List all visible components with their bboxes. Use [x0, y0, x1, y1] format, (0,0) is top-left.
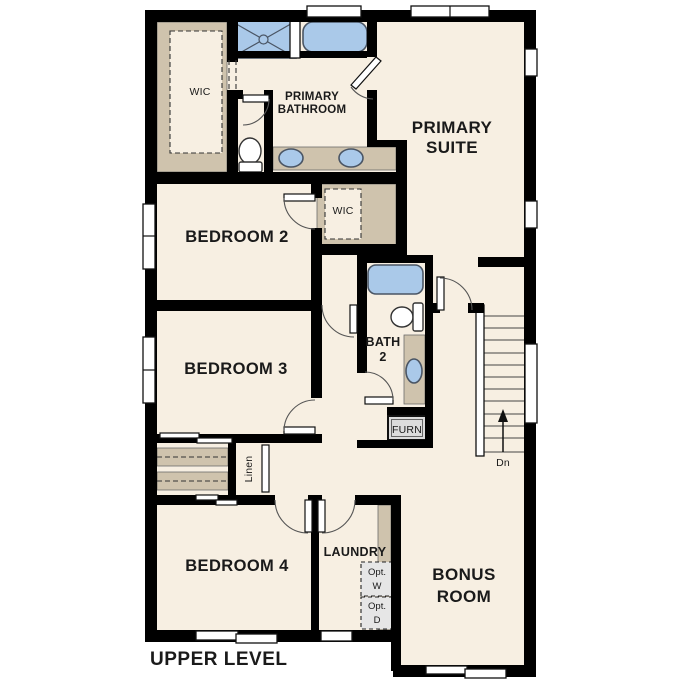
bedroom2-wic-label: WIC [332, 205, 353, 217]
linen-label: Linen [243, 456, 255, 483]
door-leaf [284, 194, 315, 201]
bedroom2-label: BEDROOM 2 [185, 228, 289, 246]
stair-railing [476, 305, 484, 456]
stairs-down-label: Dn [496, 457, 510, 469]
optional-dryer-label: D [374, 615, 381, 626]
window [525, 201, 537, 228]
bedroom2-bedroom3-wall [145, 300, 322, 311]
stair-north-wall [478, 257, 536, 267]
window [321, 631, 352, 641]
optional-washer-label: W [373, 581, 382, 592]
bathtub-bath2-icon [368, 265, 423, 294]
door-leaf [318, 500, 325, 532]
sliding-closet-door [160, 433, 199, 438]
bath2-label: BATH [366, 335, 401, 349]
window [525, 49, 537, 76]
window [525, 344, 537, 423]
bonus-wall-left [391, 495, 401, 671]
toilet-room-north-stub [227, 90, 243, 99]
bath2-east-wall [425, 255, 433, 448]
sliding-closet-door [216, 500, 237, 505]
door-leaf [305, 500, 312, 532]
laundry-north-wall [355, 495, 401, 505]
primary-suite-label: PRIMARY [412, 118, 493, 137]
furnace-label: FURN [392, 424, 422, 436]
door-leaf [284, 427, 315, 434]
window [426, 666, 467, 674]
linen-west-wall [228, 443, 236, 495]
bedroom3-east-wall [311, 311, 322, 398]
primary-bathroom-label: PRIMARY [285, 91, 339, 103]
primary-wic-label: WIC [189, 86, 210, 98]
laundry-label: LAUNDRY [324, 545, 387, 559]
door-leaf [350, 305, 357, 333]
bedroom2-wic-south-wall [311, 244, 396, 255]
shower-enclosure-panel [290, 17, 300, 58]
primary-suite-label: SUITE [426, 138, 478, 157]
sink-icon [279, 149, 303, 167]
shower-front-wall [228, 51, 290, 58]
bedroom3-label: BEDROOM 3 [184, 360, 288, 378]
furnace-south-wall [357, 440, 433, 448]
primary-bath-south-wall [145, 172, 407, 184]
bath-suite-divider-upper [367, 10, 377, 57]
bath2-label: 2 [379, 350, 386, 364]
bedroom4-label: BEDROOM 4 [185, 557, 289, 575]
optional-dryer-label: Opt. [368, 601, 386, 612]
sink-icon [339, 149, 363, 167]
door-leaf [262, 445, 269, 492]
window [236, 634, 277, 643]
bath2-west-wall [357, 255, 367, 373]
sink-icon [406, 359, 422, 383]
window [307, 6, 361, 17]
sliding-closet-door [196, 495, 218, 500]
page-title: UPPER LEVEL [150, 649, 287, 670]
bonus-room-label: BONUS [432, 565, 495, 584]
bath2-north-wall [357, 255, 433, 263]
exterior-wall-left [145, 10, 157, 642]
window [196, 631, 238, 640]
bonus-room-label: ROOM [437, 587, 491, 606]
floor-plan-drawing: PRIMARY SUITE PRIMARY BATHROOM WIC WIC B… [0, 0, 687, 687]
primary-wic-wall-lower [227, 91, 238, 172]
floor-plan-page: PRIMARY SUITE PRIMARY BATHROOM WIC WIC B… [0, 0, 687, 687]
toilet-primary-icon [239, 138, 262, 172]
sliding-closet-door [197, 438, 232, 443]
suite-door-east-stub [468, 303, 484, 313]
bathtub-primary-icon [303, 22, 367, 52]
window [465, 669, 506, 678]
door-leaf [243, 95, 269, 102]
primary-bathroom-label: BATHROOM [278, 104, 346, 116]
bedroom2-east-wall [311, 228, 322, 311]
bath2-south-wall [387, 407, 433, 415]
tub-front-wall [300, 51, 367, 58]
door-leaf [365, 397, 393, 404]
optional-washer-label: Opt. [368, 567, 386, 578]
primary-suite-west-wall [396, 140, 407, 263]
door-leaf [437, 277, 444, 310]
